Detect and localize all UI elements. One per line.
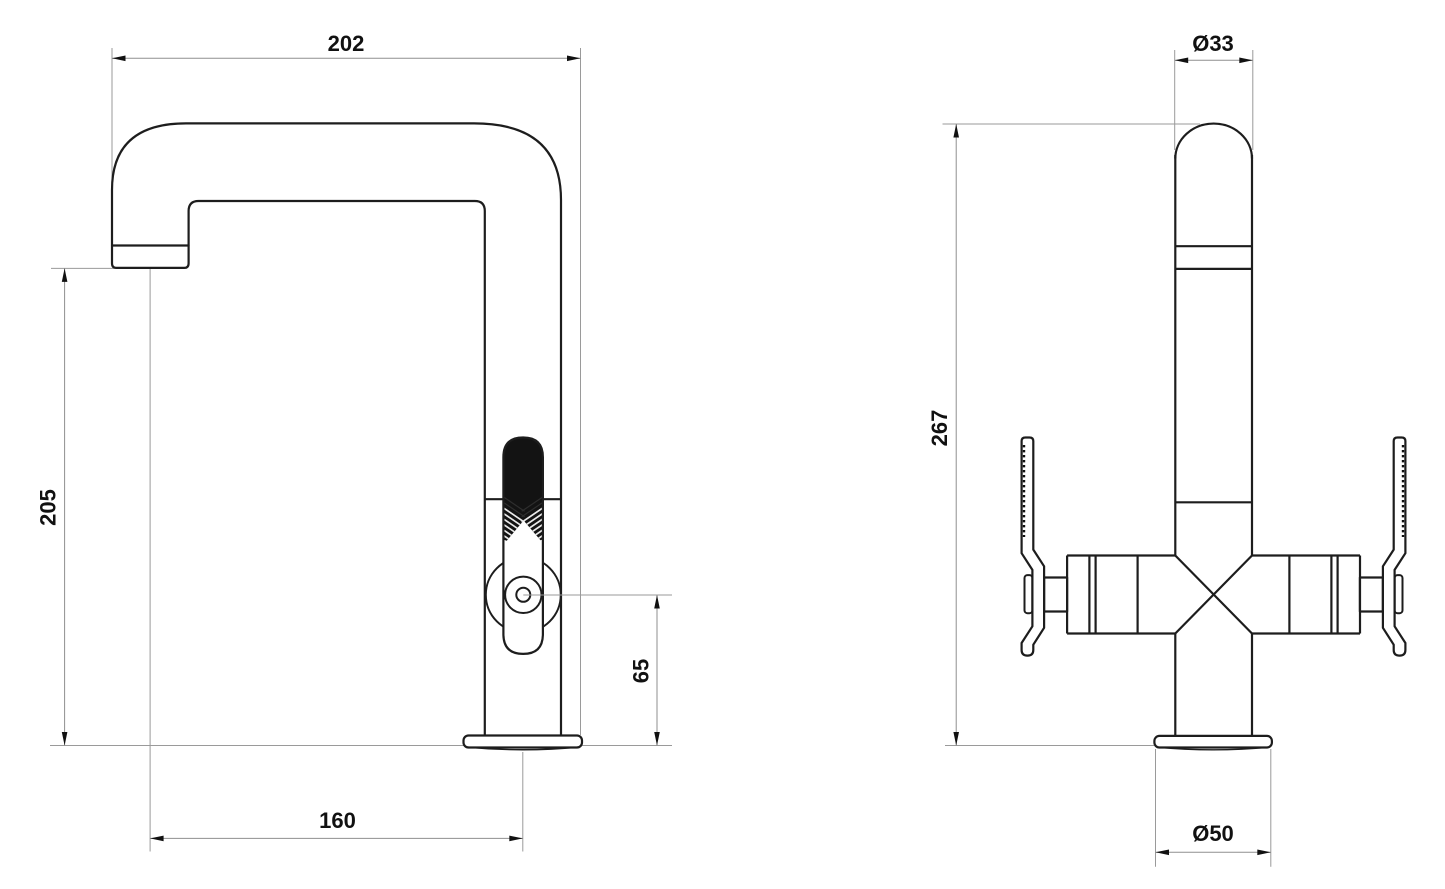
svg-text:205: 205 [35,489,60,526]
svg-text:Ø50: Ø50 [1192,821,1234,846]
svg-text:160: 160 [319,808,356,833]
svg-text:65: 65 [628,659,653,683]
svg-text:202: 202 [328,31,365,56]
svg-text:Ø33: Ø33 [1192,31,1234,56]
svg-text:267: 267 [927,410,952,447]
